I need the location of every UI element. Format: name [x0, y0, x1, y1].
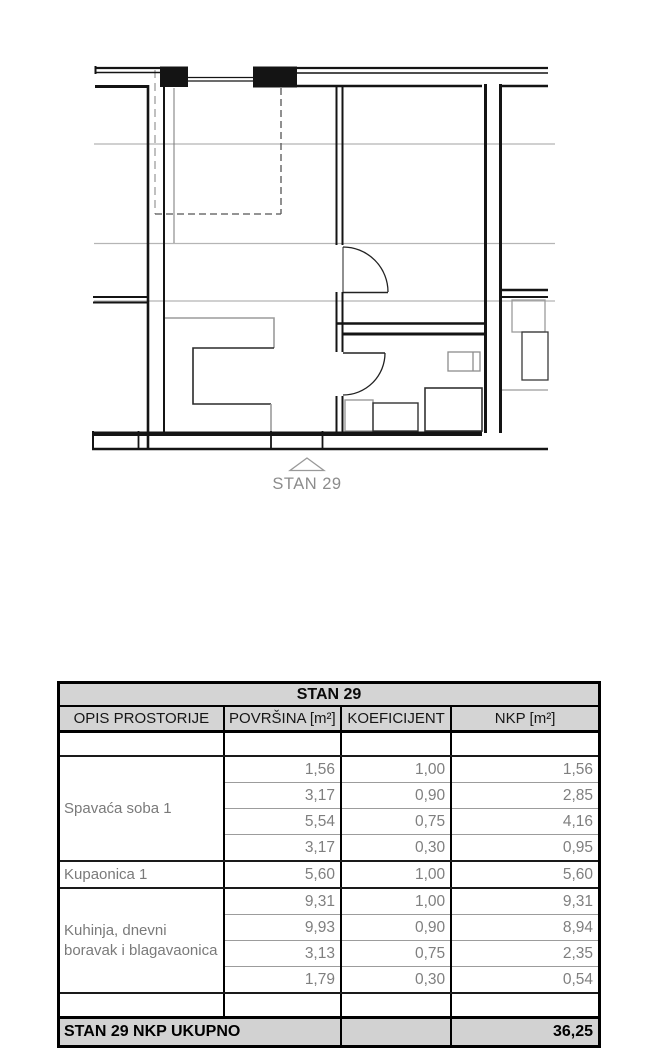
col-header-povrsina: POVRŠINA [m²]: [224, 706, 341, 732]
room-name: Spavaća soba 1: [59, 756, 224, 861]
dashed-outline: [155, 70, 281, 243]
povrsina-value: 3,17: [224, 835, 341, 862]
nkp-value: 1,56: [451, 756, 599, 783]
koeficijent-value: 0,75: [341, 941, 451, 967]
table-header-row: OPIS PROSTORIJE POVRŠINA [m²] KOEFICIJEN…: [59, 706, 600, 732]
nkp-value: 9,31: [451, 888, 599, 915]
doors: [343, 247, 388, 395]
povrsina-value: 5,54: [224, 809, 341, 835]
total-row: STAN 29 NKP UKUPNO 36,25: [59, 1018, 600, 1047]
koeficijent-value: 0,75: [341, 809, 451, 835]
povrsina-value: 1,79: [224, 967, 341, 994]
door-arc-bedroom: [343, 247, 388, 292]
page: { "plan": { "marker_label": "STAN 29" },…: [0, 0, 658, 1060]
room-name: Kupaonica 1: [59, 861, 224, 888]
areas-table: STAN 29 OPIS PROSTORIJE POVRŠINA [m²] KO…: [57, 681, 601, 1048]
total-value: 36,25: [451, 1018, 599, 1047]
total-label: STAN 29 NKP UKUPNO: [59, 1018, 341, 1047]
koeficijent-value: 1,00: [341, 756, 451, 783]
povrsina-value: 9,31: [224, 888, 341, 915]
bottom-wall: [92, 432, 482, 437]
koeficijent-value: 0,30: [341, 967, 451, 994]
table-title-row: STAN 29: [59, 683, 600, 707]
koeficijent-value: 0,90: [341, 915, 451, 941]
povrsina-value: 9,93: [224, 915, 341, 941]
toilet-icon: [373, 403, 418, 431]
nkp-value: 5,60: [451, 861, 599, 888]
table-row: Kupaonica 1 5,60 1,00 5,60: [59, 861, 600, 888]
nkp-value: 0,95: [451, 835, 599, 862]
bathtub-icon: [425, 388, 482, 431]
sink-icon: [448, 352, 480, 371]
spacer-row: [59, 993, 600, 1018]
povrsina-value: 5,60: [224, 861, 341, 888]
nkp-value: 8,94: [451, 915, 599, 941]
washer-icon: [345, 400, 373, 431]
nkp-value: 2,35: [451, 941, 599, 967]
povrsina-value: 3,17: [224, 783, 341, 809]
wall-pier-left: [160, 67, 188, 88]
nkp-value: 2,85: [451, 783, 599, 809]
nkp-value: 4,16: [451, 809, 599, 835]
povrsina-value: 3,13: [224, 941, 341, 967]
walls: [92, 66, 548, 450]
triangle-up-icon: [290, 458, 324, 471]
table-row: Spavaća soba 1 1,56 1,00 1,56: [59, 756, 600, 783]
total-empty-cell: [341, 1018, 451, 1047]
door-arc-bathroom: [343, 353, 385, 395]
col-header-nkp: NKP [m²]: [451, 706, 599, 732]
nkp-value: 0,54: [451, 967, 599, 994]
povrsina-value: 1,56: [224, 756, 341, 783]
kitchen-counter: [164, 318, 274, 431]
col-header-opis: OPIS PROSTORIJE: [59, 706, 224, 732]
koeficijent-value: 1,00: [341, 888, 451, 915]
bathroom-fixtures: [345, 352, 482, 431]
col-header-koeficijent: KOEFICIJENT: [341, 706, 451, 732]
table-title: STAN 29: [59, 683, 600, 707]
table-row: Kuhinja, dnevni boravak i blagavaonica 9…: [59, 888, 600, 915]
room-name: Kuhinja, dnevni boravak i blagavaonica: [59, 888, 224, 993]
spacer-row: [59, 732, 600, 757]
wall-pier-right: [253, 67, 297, 88]
plan-label: STAN 29: [272, 475, 341, 493]
floor-plan: STAN 29: [0, 0, 658, 520]
koeficijent-value: 0,30: [341, 835, 451, 862]
floor-plan-svg: STAN 29: [0, 0, 658, 520]
koeficijent-value: 0,90: [341, 783, 451, 809]
koeficijent-value: 1,00: [341, 861, 451, 888]
apartment-marker: STAN 29: [272, 458, 341, 493]
neighbor-fixtures: [502, 300, 548, 390]
